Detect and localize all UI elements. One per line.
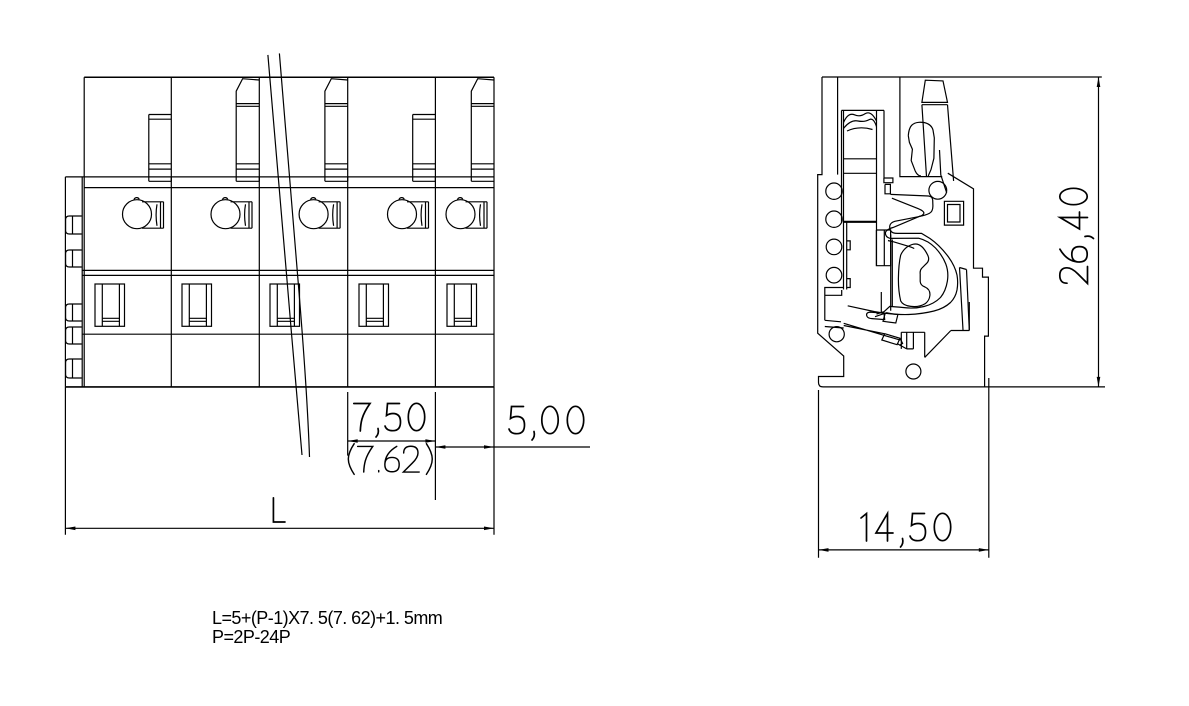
svg-text:P=2P-24P: P=2P-24P (212, 627, 291, 647)
svg-text:L=5+(P-1)X7. 5(7. 62)+1. 5mm: L=5+(P-1)X7. 5(7. 62)+1. 5mm (212, 608, 442, 628)
